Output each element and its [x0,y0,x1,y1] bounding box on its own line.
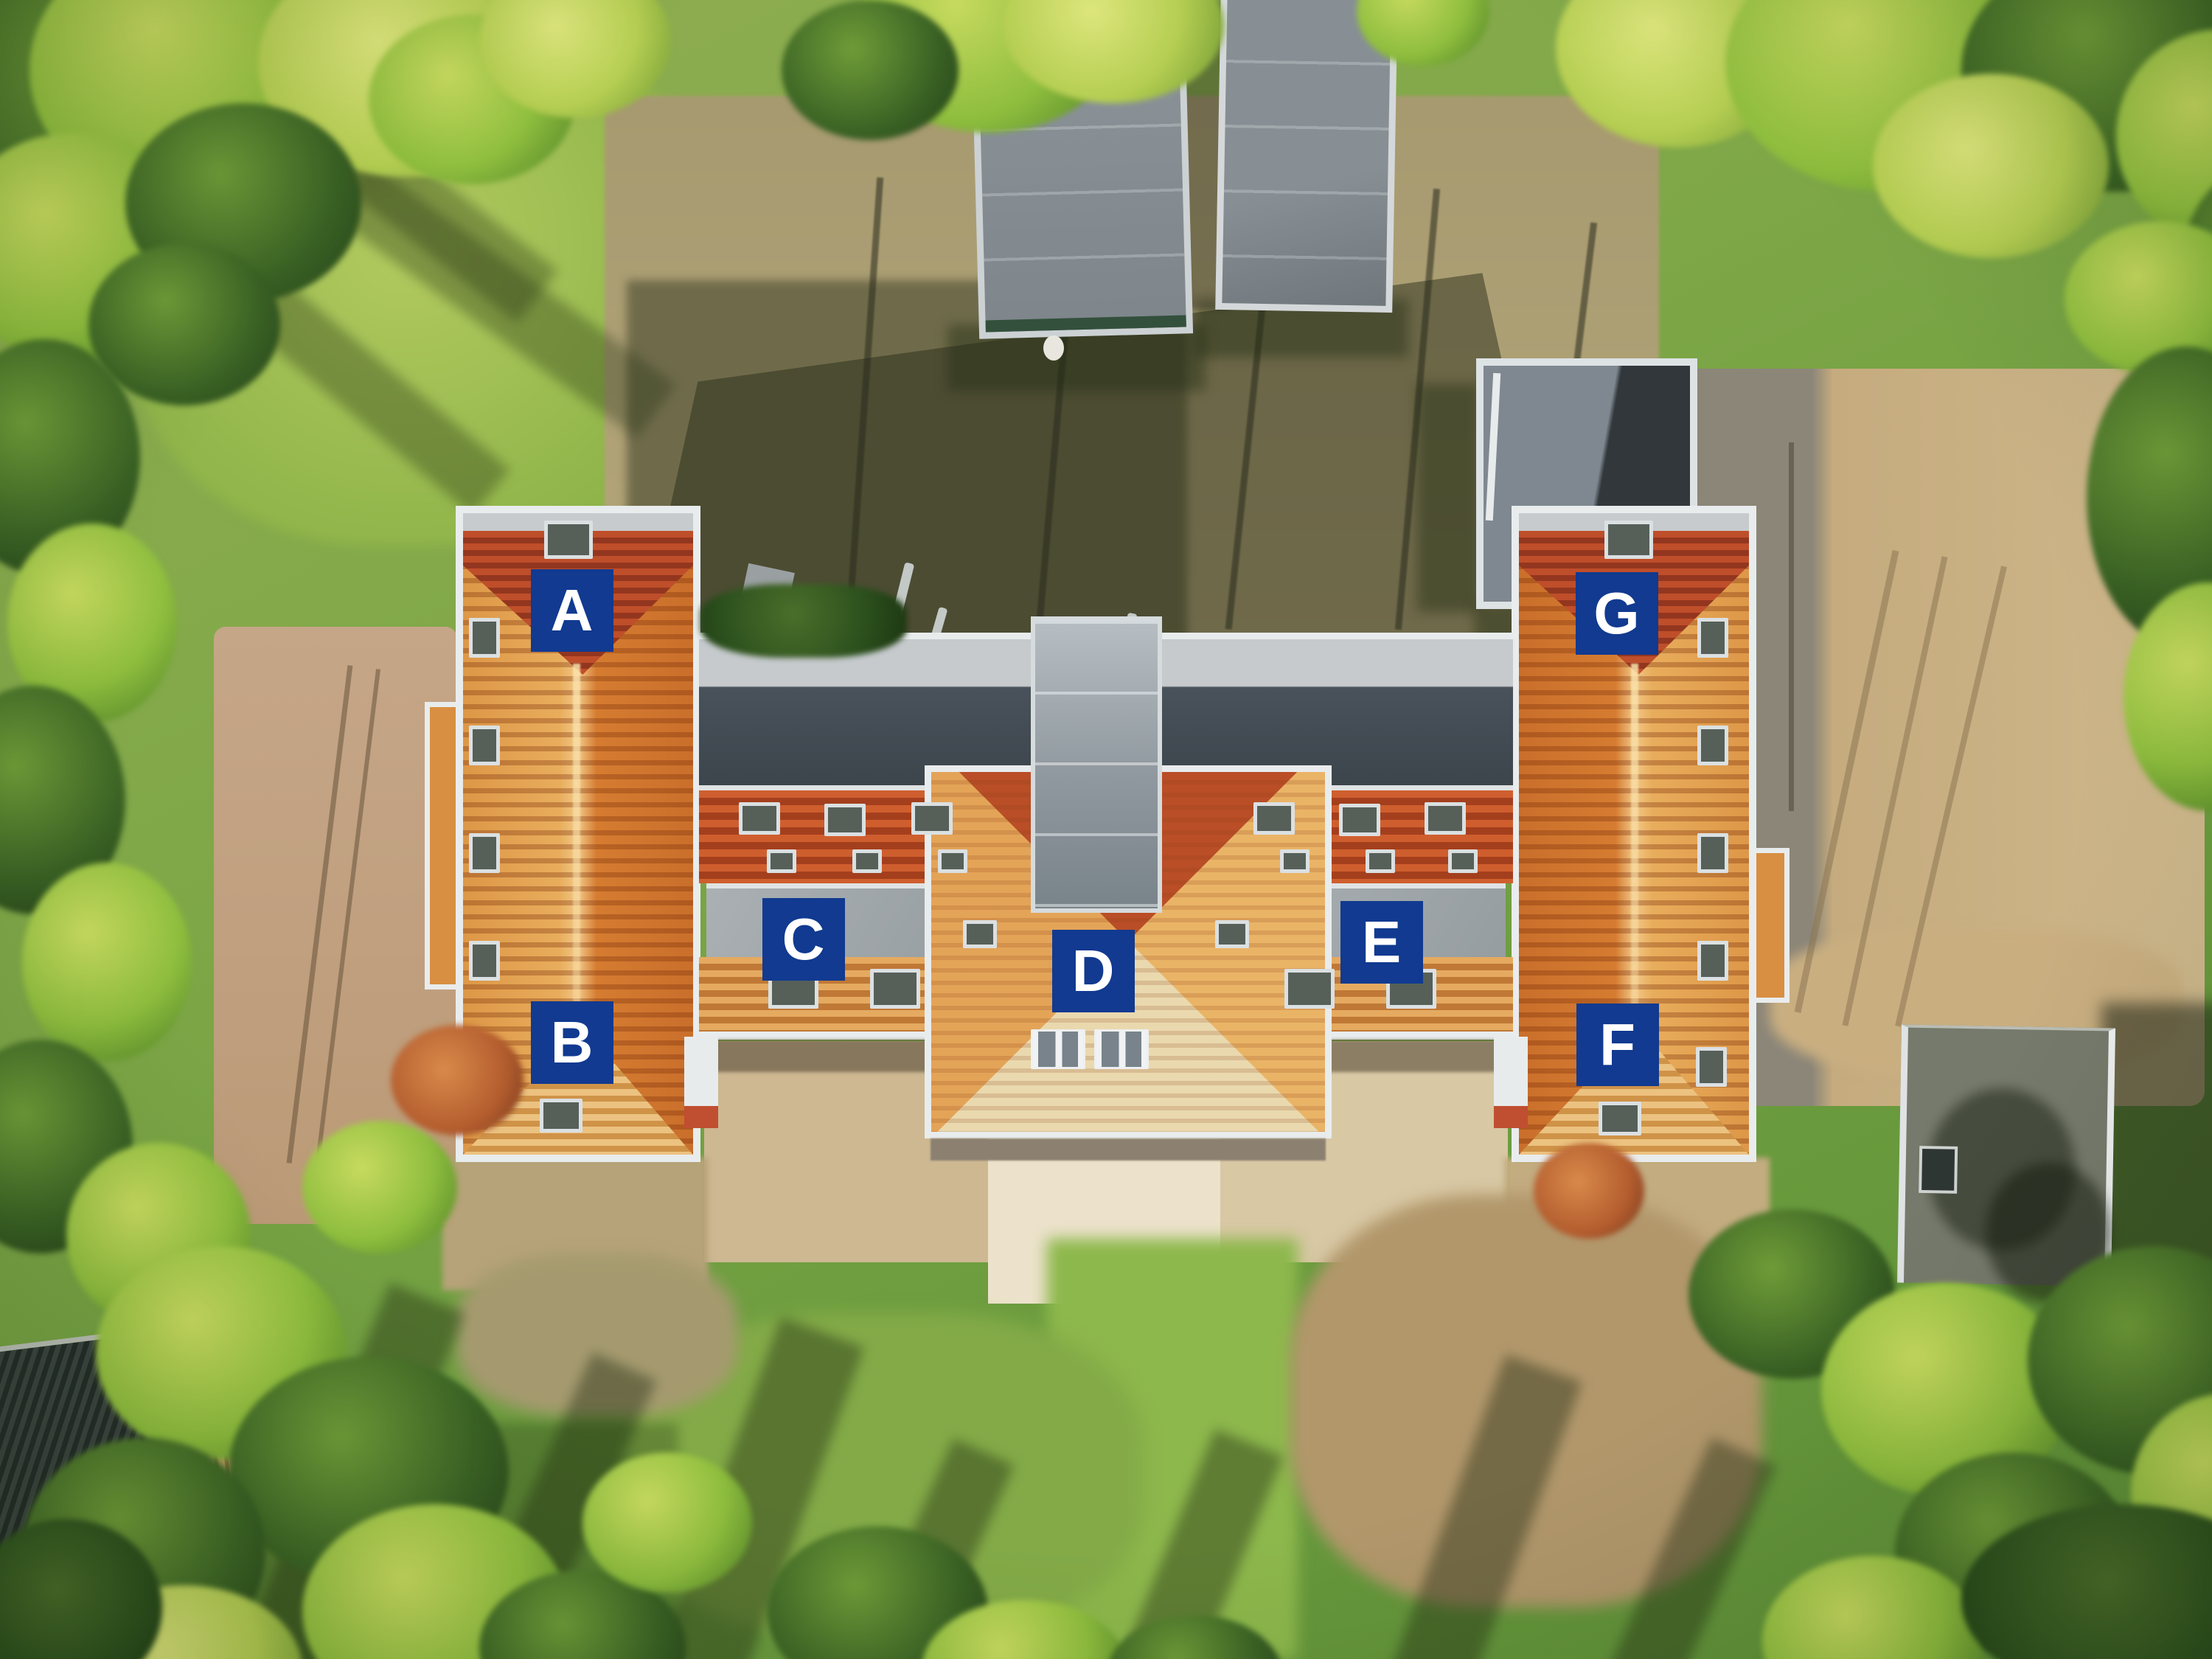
unit-label-g: G [1576,572,1658,655]
red-wall-accent [1494,1106,1528,1128]
skylight-window [1599,1102,1641,1135]
skylight-window [1366,849,1395,873]
roof-pipe [1486,373,1500,521]
unit-label-b: B [531,1001,613,1084]
skylight-window [852,849,882,873]
skylight-window [938,849,967,873]
hedge [700,584,907,658]
corner-facade-right [1494,1037,1528,1128]
skylight-window [1253,802,1295,835]
unit-label-d: D [1052,930,1135,1012]
tree-canopy [782,0,959,140]
flat-roof-garage-southeast [1897,1024,2115,1286]
autumn-tree [391,1025,524,1135]
tree-canopy [582,1453,752,1593]
skylight-window [963,920,997,948]
left-wing-ridge [573,664,580,1032]
skylight-window [1339,804,1380,836]
aerial-photo: ABCDEFG [0,0,2212,1659]
skylight-window [1697,941,1728,981]
red-wall-accent [684,1106,718,1128]
dormer-window [1094,1029,1149,1069]
autumn-shrub [1534,1143,1644,1239]
skylight-window [767,849,796,873]
right-wing-ridge [1631,664,1638,1032]
skylight-window [469,833,500,873]
pavilion-d-solar-panel [1031,616,1162,913]
unit-label-e: E [1340,901,1423,984]
skylight-window [469,726,500,765]
skylight-window [1697,833,1728,873]
dormer-skylight [1604,521,1653,559]
tree-canopy [1873,74,2109,258]
garage-shadow [1417,383,1480,612]
skylight-window [870,969,920,1009]
skylight-window [1696,1047,1727,1087]
tree-canopy [22,863,192,1062]
dormer-skylight [544,521,593,559]
unit-label-a: A [531,569,613,652]
skylight-window [540,1099,582,1133]
skylight-window [1215,920,1249,948]
flat-roof-shed-north-2 [1215,0,1398,313]
pavilion-d-facade-shadow [931,1138,1326,1161]
skylight-window [469,941,500,981]
skylight-window [824,804,866,836]
skylight-window [1425,802,1466,835]
skylight-window [911,802,953,835]
corner-facade-left [684,1037,718,1128]
roof-hatch [1919,1146,1958,1194]
skylight-window [1284,969,1335,1009]
dormer-window [1031,1029,1085,1069]
fence-shadow [1789,442,1794,811]
tree-canopy [302,1121,457,1253]
skylight-window [1280,849,1310,873]
skylight-window [1697,618,1728,658]
skylight-window [469,618,500,658]
skylight-window [1448,849,1478,873]
white-rock [1043,335,1064,361]
skylight-window [1697,726,1728,765]
unit-label-c: C [762,898,845,981]
shed-fascia [986,315,1186,332]
unit-label-f: F [1576,1004,1659,1086]
skylight-window [739,802,780,835]
